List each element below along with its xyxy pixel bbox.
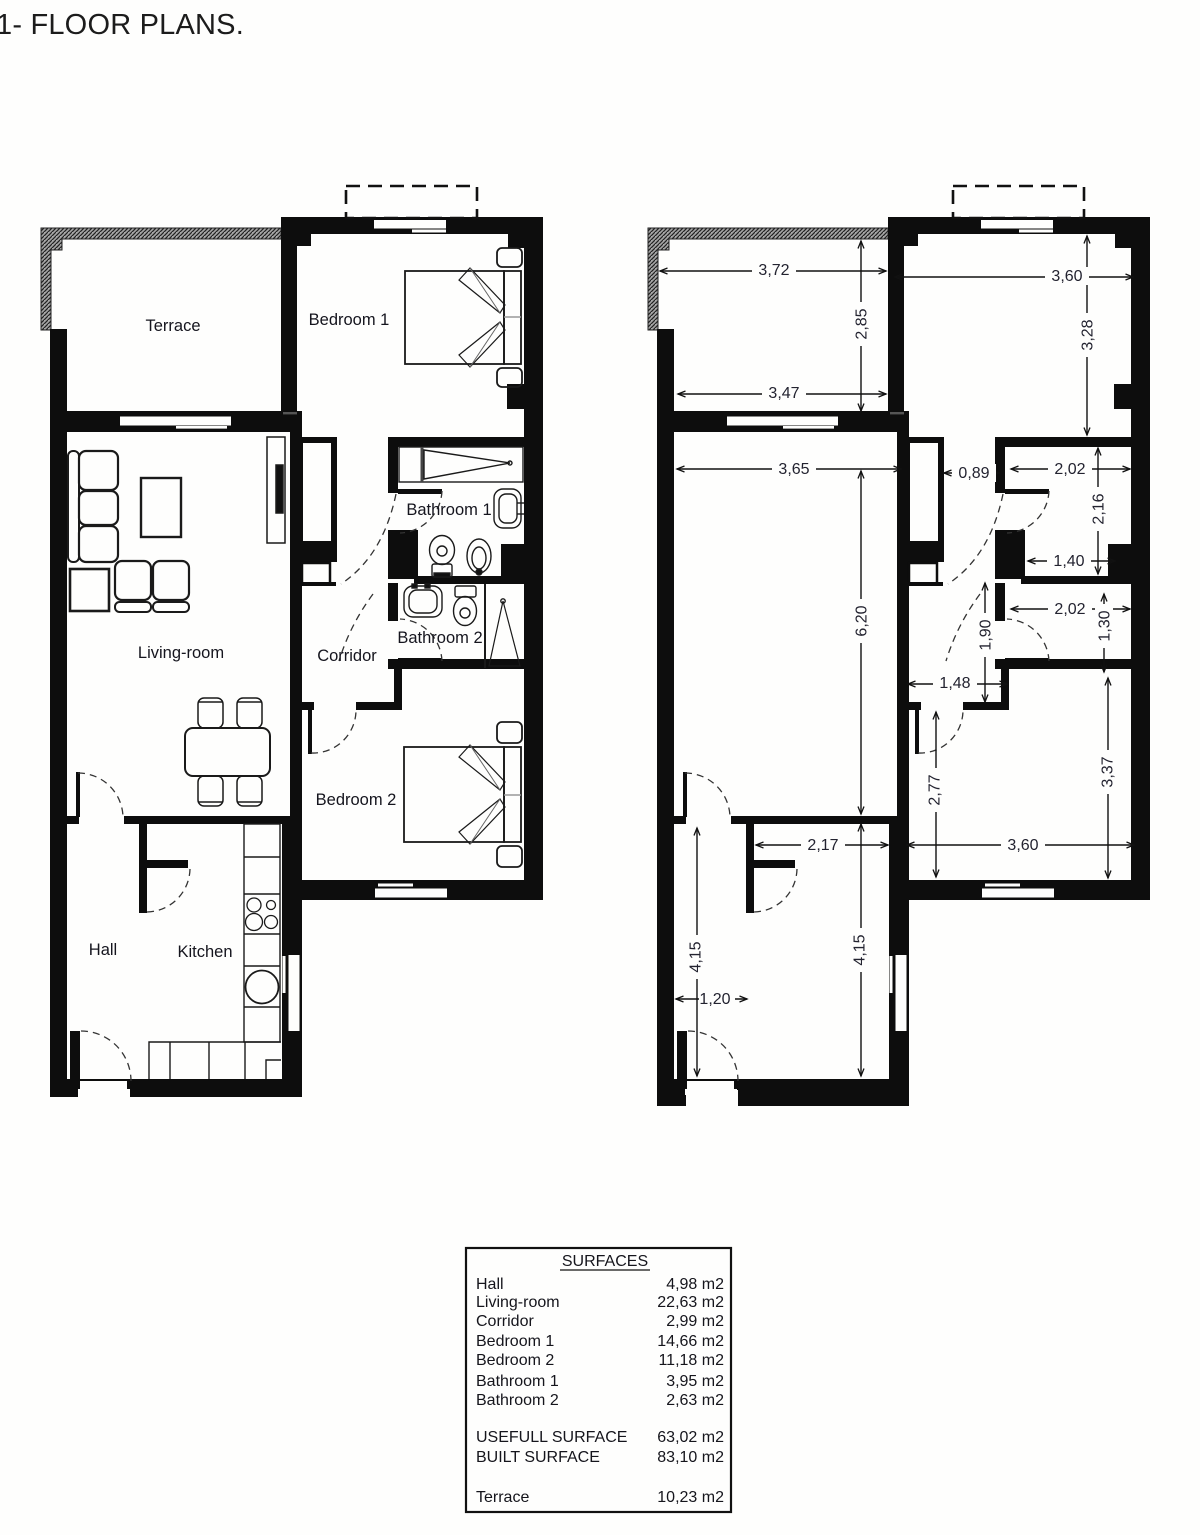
svg-text:11,18 m2: 11,18 m2 <box>658 1352 724 1369</box>
svg-text:2,77: 2,77 <box>927 774 944 805</box>
svg-text:Terrace: Terrace <box>145 317 200 335</box>
svg-text:3,37: 3,37 <box>1100 756 1117 787</box>
svg-text:1,30: 1,30 <box>1097 610 1114 641</box>
svg-text:Living-room: Living-room <box>138 644 224 662</box>
svg-text:2,85: 2,85 <box>854 308 871 339</box>
svg-text:Living-room: Living-room <box>476 1294 560 1311</box>
svg-text:Bathroom 2: Bathroom 2 <box>397 629 482 647</box>
svg-text:22,63 m2: 22,63 m2 <box>657 1294 724 1311</box>
svg-text:1- FLOOR PLANS.: 1- FLOOR PLANS. <box>0 9 244 41</box>
svg-text:0,89: 0,89 <box>958 465 989 482</box>
svg-text:3,47: 3,47 <box>768 385 799 402</box>
svg-text:Corridor: Corridor <box>317 647 377 665</box>
svg-text:3,72: 3,72 <box>758 262 789 279</box>
svg-text:Bedroom 2: Bedroom 2 <box>476 1352 554 1369</box>
svg-text:4,98 m2: 4,98 m2 <box>666 1276 724 1293</box>
svg-text:1,48: 1,48 <box>939 675 970 692</box>
svg-text:USEFULL SURFACE: USEFULL SURFACE <box>476 1429 627 1446</box>
svg-text:2,16: 2,16 <box>1091 493 1108 524</box>
svg-text:3,65: 3,65 <box>778 461 809 478</box>
svg-text:3,60: 3,60 <box>1051 268 1082 285</box>
svg-text:3,60: 3,60 <box>1007 837 1038 854</box>
svg-text:6,20: 6,20 <box>854 605 871 636</box>
svg-text:10,23 m2: 10,23 m2 <box>657 1489 724 1506</box>
svg-text:2,63 m2: 2,63 m2 <box>666 1392 724 1409</box>
svg-text:1,90: 1,90 <box>978 619 995 650</box>
svg-text:Bathroom 2: Bathroom 2 <box>476 1392 559 1409</box>
svg-text:4,15: 4,15 <box>688 941 705 972</box>
svg-text:Bedroom 1: Bedroom 1 <box>476 1333 554 1350</box>
svg-text:Terrace: Terrace <box>476 1489 529 1506</box>
svg-text:Bedroom 2: Bedroom 2 <box>316 791 397 809</box>
svg-text:2,02: 2,02 <box>1054 601 1085 618</box>
svg-text:63,02 m2: 63,02 m2 <box>657 1429 724 1446</box>
svg-text:83,10 m2: 83,10 m2 <box>657 1449 724 1466</box>
svg-text:4,15: 4,15 <box>852 934 869 965</box>
svg-text:Hall: Hall <box>476 1276 504 1293</box>
svg-text:SURFACES: SURFACES <box>562 1253 648 1270</box>
svg-text:Corridor: Corridor <box>476 1313 534 1330</box>
svg-text:2,02: 2,02 <box>1054 461 1085 478</box>
svg-text:3,28: 3,28 <box>1080 319 1097 350</box>
svg-text:2,17: 2,17 <box>807 837 838 854</box>
svg-text:Kitchen: Kitchen <box>177 943 232 961</box>
svg-text:2,99 m2: 2,99 m2 <box>666 1313 724 1330</box>
svg-text:Bedroom 1: Bedroom 1 <box>309 311 390 329</box>
svg-text:BUILT SURFACE: BUILT SURFACE <box>476 1449 600 1466</box>
svg-text:Bathroom 1: Bathroom 1 <box>406 501 491 519</box>
svg-text:14,66 m2: 14,66 m2 <box>657 1333 724 1350</box>
svg-text:3,95 m2: 3,95 m2 <box>666 1373 724 1390</box>
svg-text:1,40: 1,40 <box>1053 553 1084 570</box>
svg-text:Hall: Hall <box>89 941 117 959</box>
svg-text:Bathroom 1: Bathroom 1 <box>476 1373 559 1390</box>
svg-text:1,20: 1,20 <box>699 991 730 1008</box>
